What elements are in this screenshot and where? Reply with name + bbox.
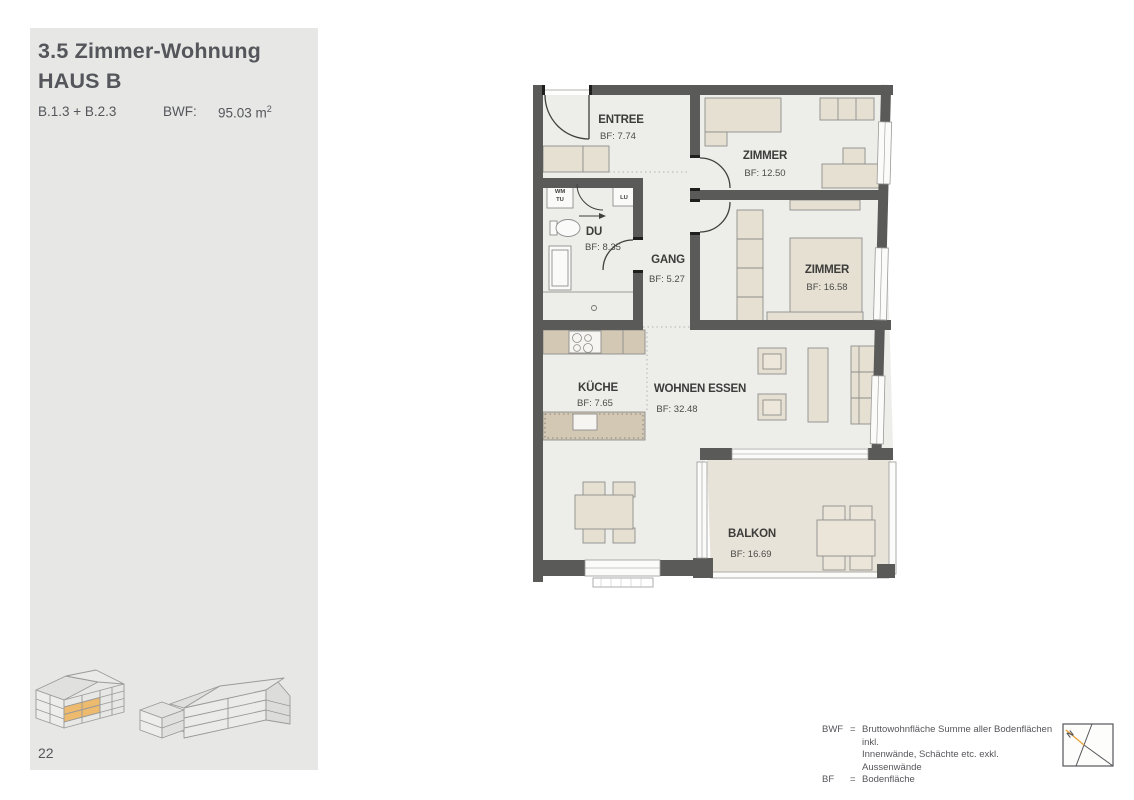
- room-bf-balkon: BF: 16.69: [730, 549, 771, 560]
- room-label-zimmer1: ZIMMER: [743, 150, 788, 162]
- room-label-wohnen: WOHNEN ESSEN: [654, 383, 746, 395]
- room-bf-zimmer2: BF: 16.58: [806, 282, 847, 293]
- bwf-value-sup: 2: [267, 104, 272, 114]
- room-label-du: DU: [586, 226, 602, 238]
- room-bf-wohnen: BF: 32.48: [656, 404, 697, 415]
- legend-term-bf: BF: [822, 774, 850, 787]
- room-label-kueche: KÜCHE: [578, 381, 618, 394]
- dining-window: [585, 560, 660, 587]
- dining-set: [575, 482, 635, 543]
- kitchen-counter: [543, 330, 645, 354]
- bwf-value: 95.03 m2: [218, 104, 272, 121]
- fixture-label-tu: TU: [556, 197, 564, 203]
- floor-plan: ENTREE BF: 7.74 ZIMMER BF: 12.50 ZIMMER …: [525, 80, 915, 595]
- page-title-line2: HAUS B: [38, 66, 261, 96]
- room-bf-entree: BF: 7.74: [600, 131, 636, 142]
- site-plan-diagram: [32, 656, 302, 750]
- room-bf-zimmer1: BF: 12.50: [744, 168, 785, 179]
- room-label-balkon: BALKON: [728, 528, 776, 540]
- room-bf-gang: BF: 5.27: [649, 274, 685, 285]
- dining-glazing: [697, 462, 707, 558]
- unit-ids: B.1.3 + B.2.3: [38, 104, 116, 119]
- room-bf-du: BF: 8.35: [585, 242, 621, 253]
- room-label-zimmer2: ZIMMER: [805, 264, 850, 276]
- room-label-gang: GANG: [651, 254, 685, 266]
- document-page: { "sidebar": { "title_line1": "3.5 Zimme…: [0, 0, 1134, 800]
- balcony-sliding-door: [732, 449, 868, 459]
- building-haus-a: [140, 678, 290, 738]
- legend-eq-2: =: [850, 774, 862, 787]
- legend-text-bwf-2: Innenwände, Schächte etc. exkl. Aussenwä…: [862, 749, 1057, 774]
- entree-closet: [543, 146, 609, 172]
- page-number: 22: [38, 745, 54, 761]
- fixture-label-lu: LU: [620, 195, 628, 201]
- legend-eq-1: =: [850, 724, 862, 749]
- legend-term-bwf: BWF: [822, 724, 850, 749]
- bwf-value-number: 95.03 m: [218, 106, 267, 121]
- vanity-icon: [549, 246, 571, 290]
- title-block: 3.5 Zimmer-Wohnung HAUS B: [38, 36, 261, 96]
- sidebar: 3.5 Zimmer-Wohnung HAUS B B.1.3 + B.2.3 …: [30, 28, 318, 770]
- kitchen-island: [543, 412, 645, 440]
- legend-text-bf: Bodenfläche: [862, 774, 1057, 787]
- building-haus-b: [36, 670, 124, 728]
- north-arrow-icon: N: [1062, 723, 1116, 769]
- fixture-label-wm: WM: [555, 189, 565, 195]
- unit-meta: B.1.3 + B.2.3 BWF: 95.03 m2: [38, 104, 310, 122]
- page-title-line1: 3.5 Zimmer-Wohnung: [38, 36, 261, 66]
- legend: BWF = Bruttowohnfläche Summe aller Boden…: [822, 724, 1057, 787]
- room-label-entree: ENTREE: [598, 114, 644, 126]
- toilet-icon: [550, 220, 580, 237]
- room-bf-kueche: BF: 7.65: [577, 398, 613, 409]
- bwf-label: BWF:: [163, 104, 197, 119]
- legend-text-bwf-1: Bruttowohnfläche Summe aller Bodenfläche…: [862, 724, 1057, 749]
